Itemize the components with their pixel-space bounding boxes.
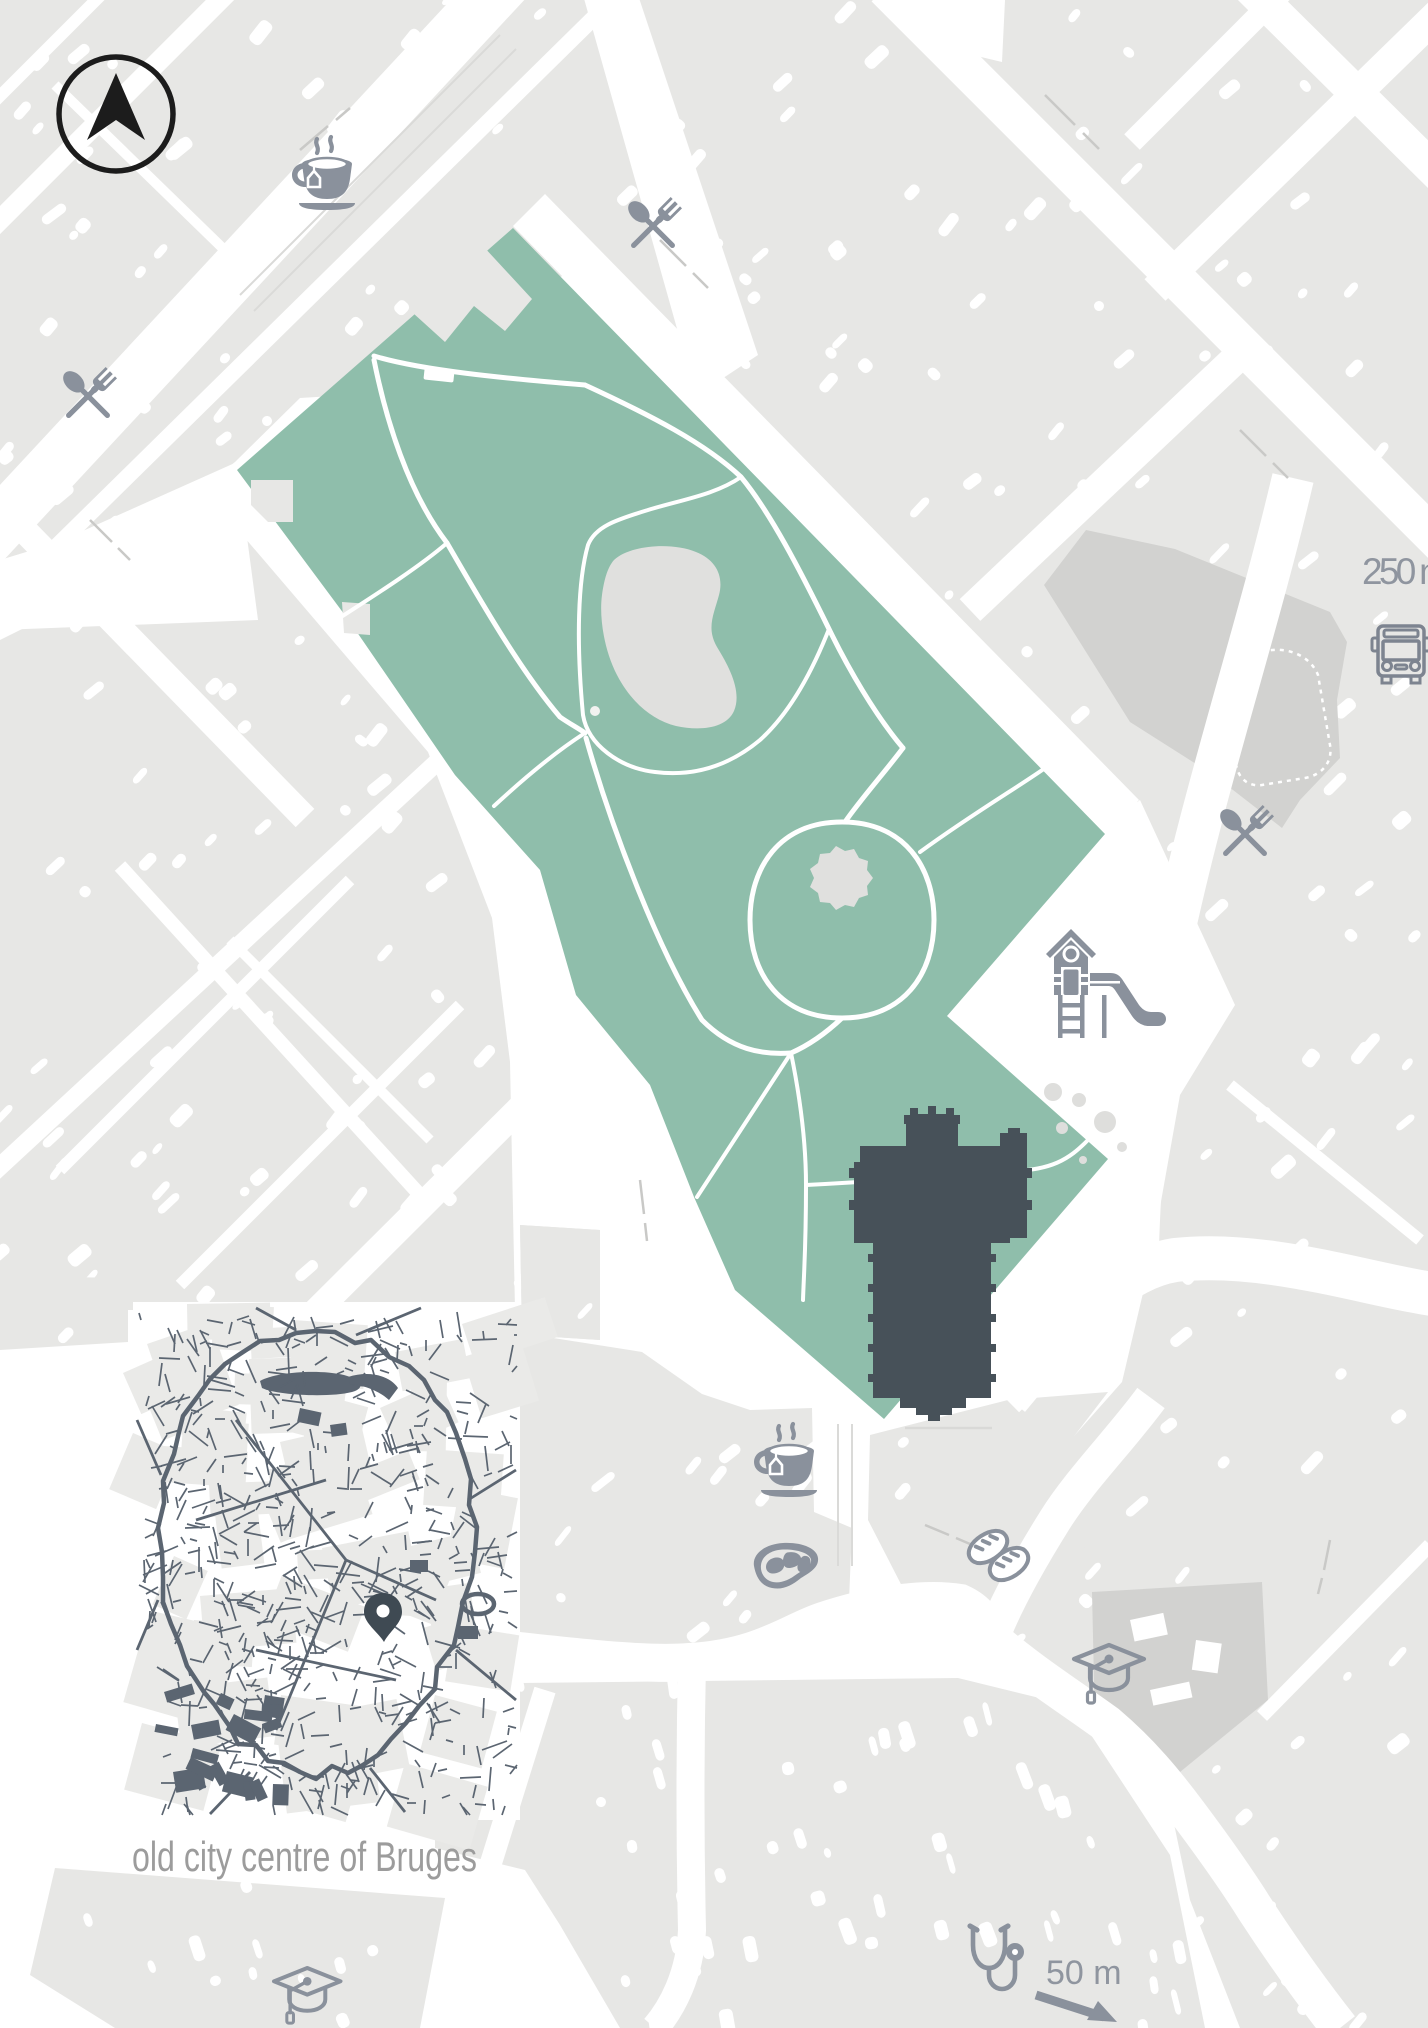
svg-text:250 m: 250 m [1362,551,1428,592]
svg-text:old city centre of Bruges: old city centre of Bruges [132,1833,477,1880]
svg-text:50 m: 50 m [1046,1954,1122,1992]
